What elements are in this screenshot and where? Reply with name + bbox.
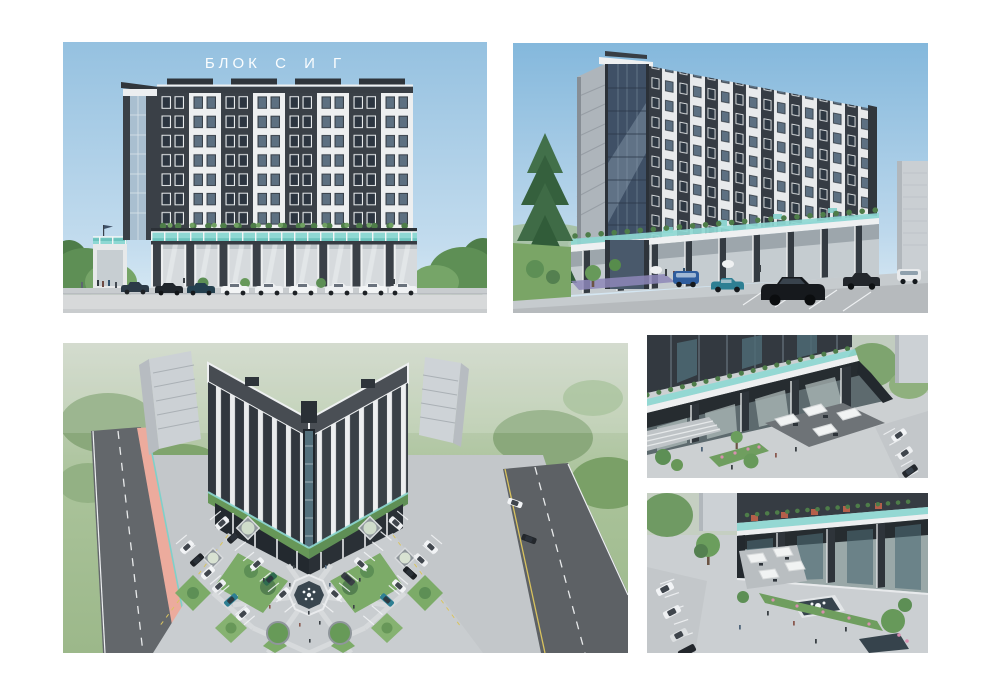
render-terrace-closeup [647,335,928,478]
background-building [895,335,928,383]
corner-perspective-illustration [513,43,928,313]
render-aerial-plaza [63,343,628,653]
block-title: БЛОК С И Г [63,55,487,72]
render-plaza-closeup [647,493,928,653]
plaza-closeup-illustration [647,493,928,653]
render-front-elevation: БЛОК С И Г [63,42,487,313]
storefront-base [151,241,417,290]
terrace-closeup-illustration [647,335,928,478]
render-corner-perspective [513,43,928,313]
neighbor-slab-right [419,357,469,447]
neighbor-slab-left [139,351,201,455]
aerial-illustration [63,343,628,653]
fountain [289,575,329,615]
front-elevation-illustration [63,42,487,313]
terrace [151,225,417,241]
presentation-page: БЛОК С И Г [0,0,990,700]
